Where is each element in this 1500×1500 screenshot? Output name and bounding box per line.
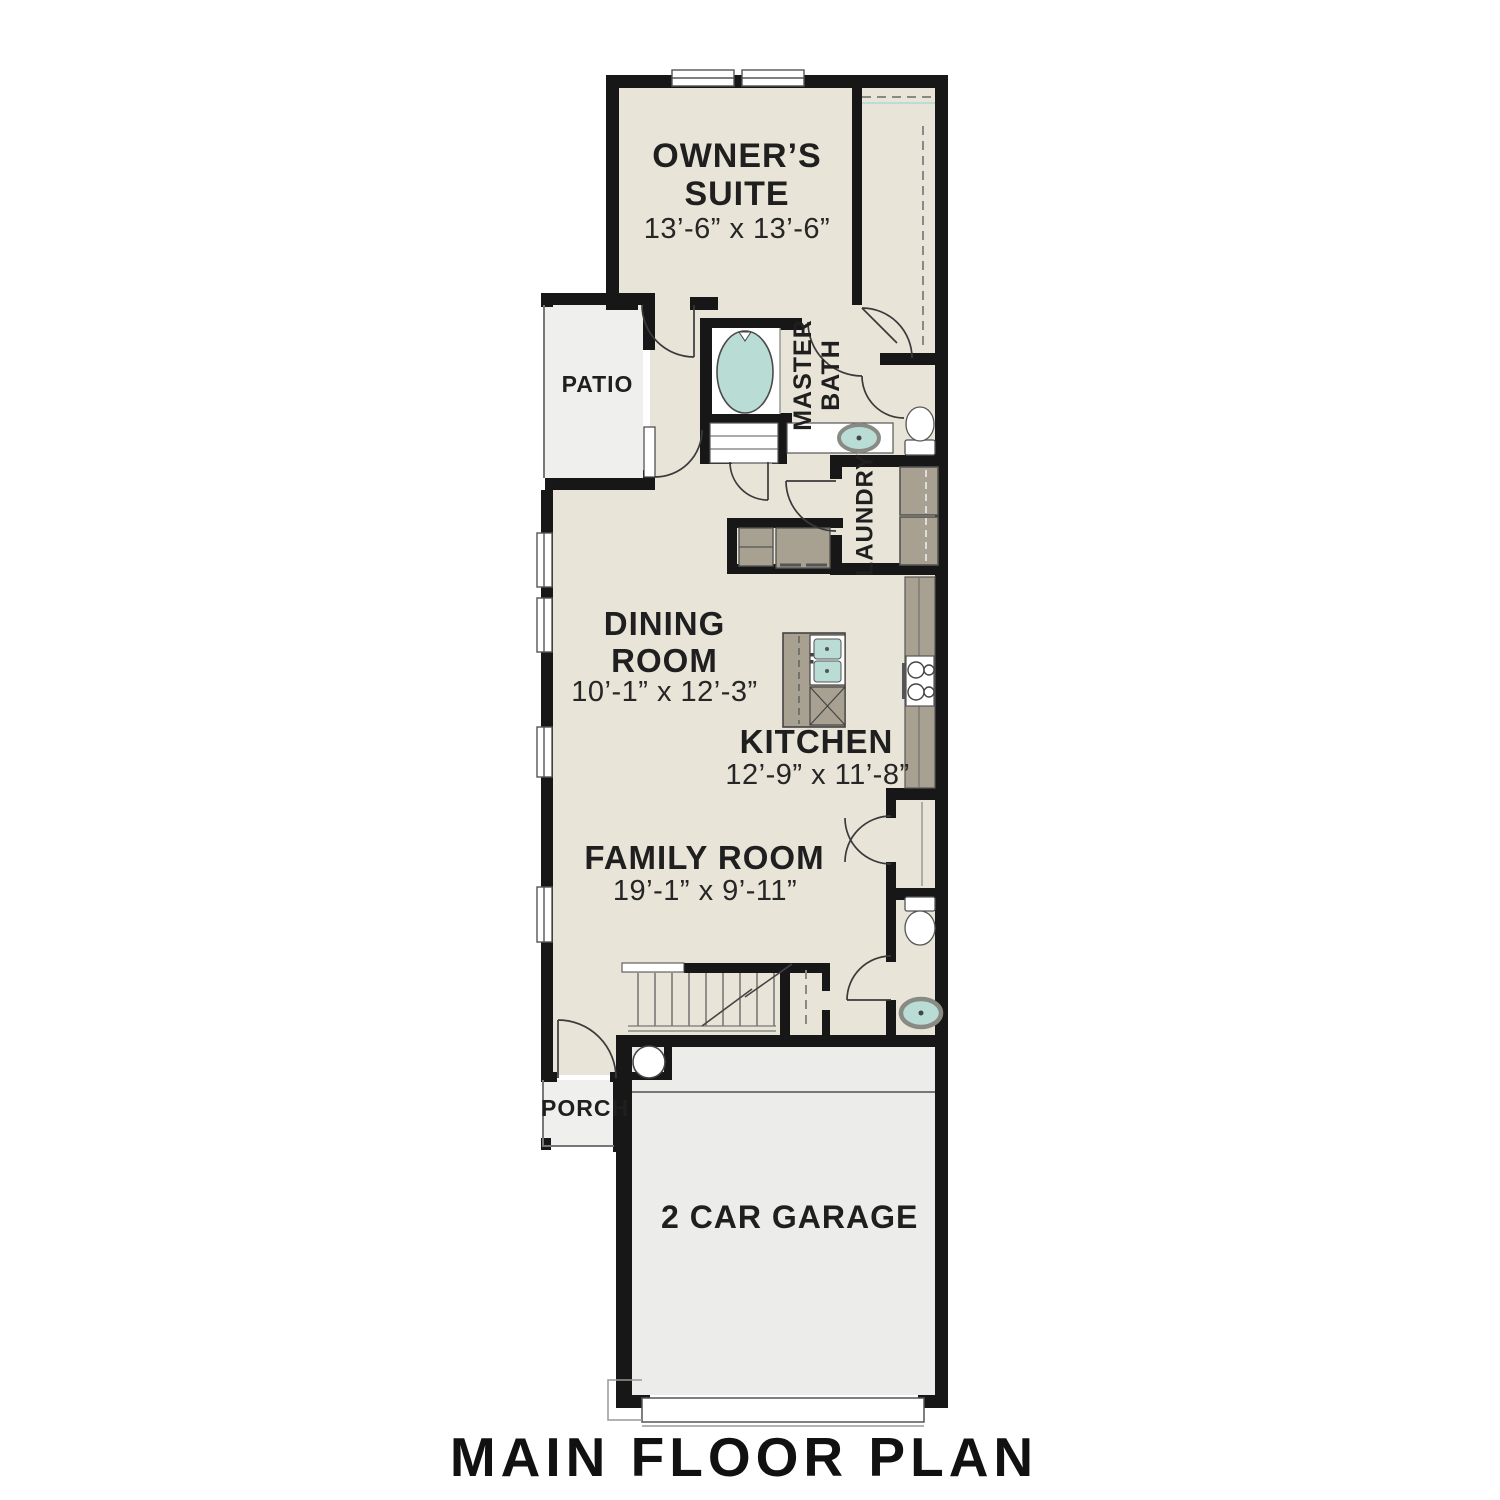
kitchen-label: KITCHEN (714, 724, 919, 761)
master-bath-label: MASTER BATH (789, 315, 845, 435)
master-toilet-tank (905, 440, 935, 455)
washer (900, 467, 938, 515)
family-room-label: FAMILY ROOM (577, 840, 832, 877)
family-room-dims: 19’-1” x 9’-11” (590, 876, 820, 908)
owners-suite-label: OWNER’S SUITE (632, 137, 842, 213)
kitchen-cabinets (739, 528, 830, 568)
dining-room-label: DINING ROOM (562, 606, 767, 680)
kitchen-dims: 12’-9” x 11’-8” (700, 760, 935, 792)
owners-suite-dims: 13’-6” x 13’-6” (607, 214, 867, 246)
patio-door-leaf (644, 427, 655, 477)
water-heater (633, 1046, 665, 1078)
oven-handle (902, 663, 906, 699)
dryer (900, 517, 938, 565)
porch-label: PORCH (541, 1096, 615, 1122)
half-bath-toilet-bowl (905, 911, 935, 945)
plan-title: MAIN FLOOR PLAN (394, 1425, 1094, 1489)
floor-plan-page: OWNER’S SUITE 13’-6” x 13’-6” DINING ROO… (0, 0, 1500, 1500)
kitchen-island (783, 633, 845, 727)
half-bath-toilet-tank (905, 897, 935, 911)
linen-shelves (710, 423, 778, 463)
patio-label: PATIO (549, 372, 646, 398)
laundry-label: LAUNDRY (853, 456, 880, 576)
garage-label: 2 CAR GARAGE (661, 1200, 906, 1236)
master-toilet-bowl (906, 407, 934, 441)
stair-rail (622, 963, 684, 972)
bathtub (717, 331, 773, 413)
refrigerator (776, 528, 830, 568)
dining-room-dims: 10’-1” x 12’-3” (547, 677, 782, 709)
